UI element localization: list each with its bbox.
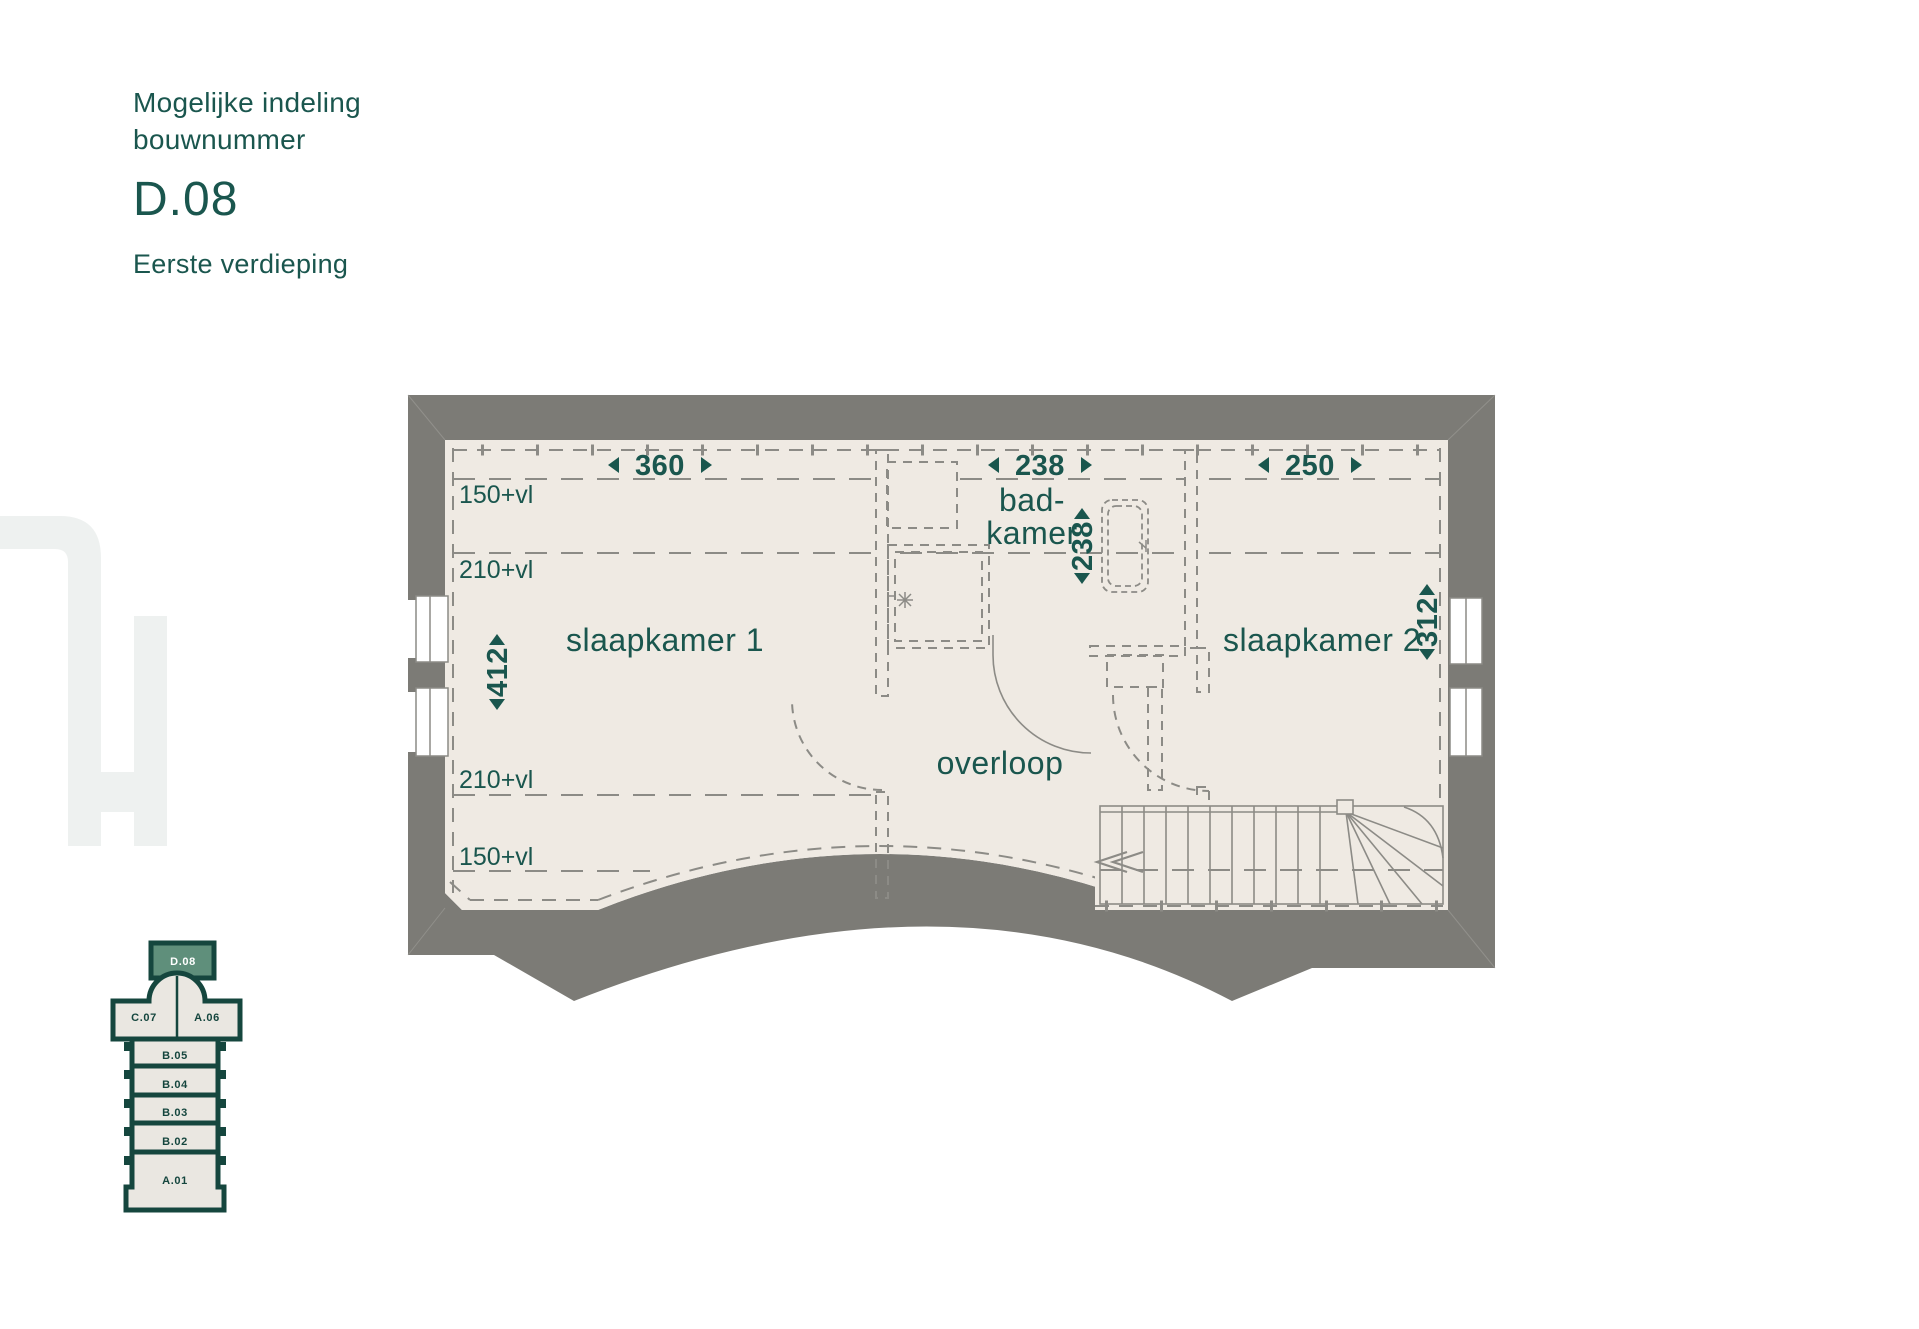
zone-label-bottom-inner: 210+vl [459,766,533,794]
bedroom1-width-dim: 360 [635,450,685,482]
staircase [1095,800,1448,910]
window-sill [1500,604,1518,660]
site-unit-label: B.02 [162,1136,188,1148]
site-unit-label: B.03 [162,1107,188,1119]
page-header: Mogelijke indeling bouwnummer D.08 Eerst… [133,84,361,280]
site-unit-label: C.07 [131,1012,157,1024]
site-unit-label: B.04 [162,1079,188,1091]
bathroom-label-line1: bad- [999,482,1065,518]
zone-label-top-outer: 150+vl [459,481,533,509]
site-unit-label: B.05 [162,1050,188,1062]
bedroom2-label: slaapkamer 2 [1223,622,1421,658]
site-unit-label: A.01 [162,1175,188,1187]
zone-label-bottom-outer: 150+vl [459,843,533,871]
header-line1: Mogelijke indeling [133,84,361,121]
bedroom2-width-dim: 250 [1285,450,1335,482]
site-unit-label: A.06 [194,1012,220,1024]
floor-name: Eerste verdieping [133,249,361,280]
site-plan: D.08 C.07 A.06 B.05 B.04 B.03 B.02 A.01 [113,943,240,1210]
landing-label: overloop [937,745,1064,781]
bathroom-width-dim: 238 [1015,450,1065,482]
bathroom-depth-dim: 238 [1067,521,1099,571]
stair-newel [1337,800,1353,814]
bedroom2-depth-dim: 312 [1412,597,1444,647]
bedroom1-depth-dim: 412 [482,647,514,697]
site-unit-d08-label: D.08 [170,956,196,968]
bathroom-label-line2: kamer [986,515,1077,551]
unit-number: D.08 [133,172,361,227]
header-line2: bouwnummer [133,121,361,158]
window-sill [396,600,416,658]
bedroom1-label: slaapkamer 1 [566,622,764,658]
window-sill [396,692,416,752]
zone-label-top-inner: 210+vl [459,556,533,584]
window-sill [1500,694,1518,750]
window-frame [416,596,448,662]
watermark-logo [0,516,167,846]
window-frame [416,688,448,756]
